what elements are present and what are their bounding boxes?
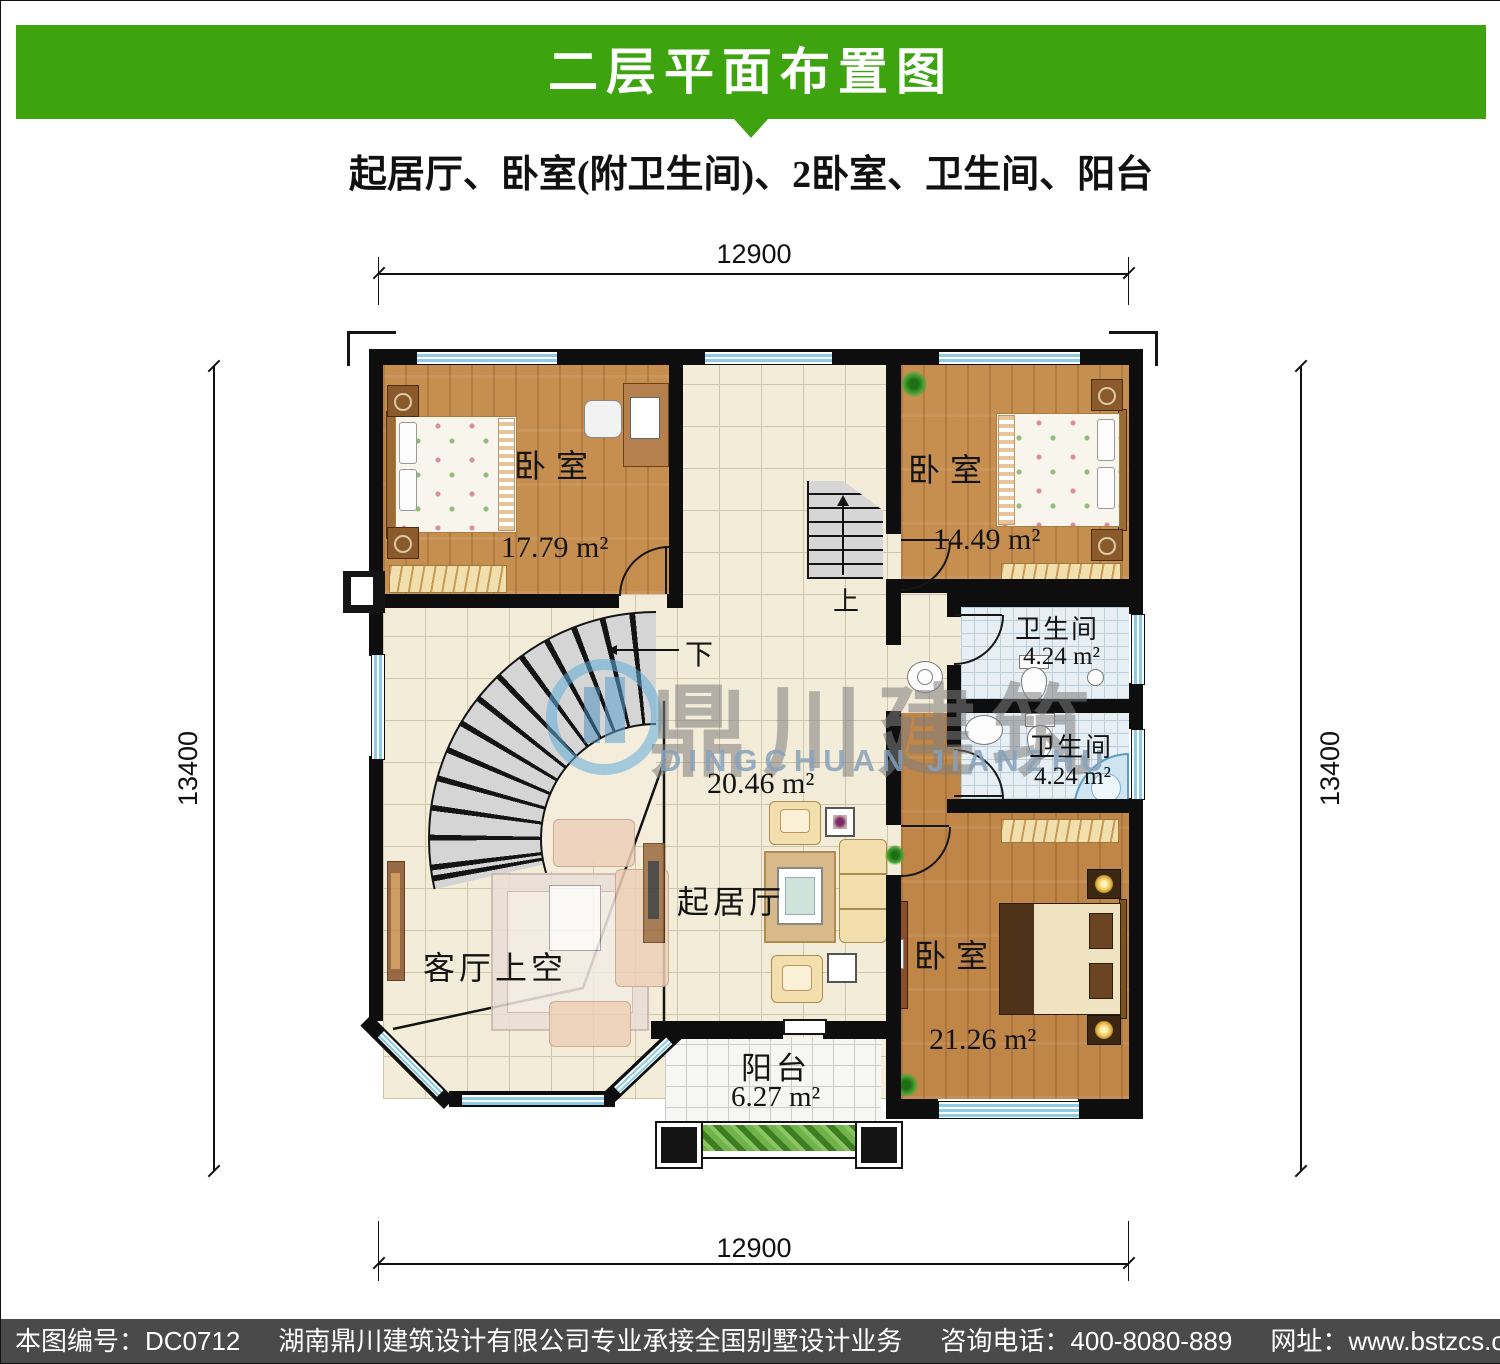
- balcony-column-right: [861, 1127, 897, 1163]
- corner-ornament-topleft: [347, 331, 396, 366]
- bedroom3-label: 卧室: [914, 931, 998, 977]
- bath2-label: 卫生间: [1029, 727, 1113, 764]
- bedroom3-area: 21.26 m²: [929, 1023, 1036, 1057]
- footer-website: 网址：www.bstzcs.com: [1270, 1326, 1500, 1356]
- footer-phone: 咨询电话：400-8080-889: [940, 1326, 1232, 1356]
- balcony-column-left: [661, 1127, 697, 1163]
- chimney-notch: [351, 577, 373, 605]
- bedroom1-label: 卧室: [514, 441, 598, 487]
- bedroom1-area: 17.79 m²: [501, 531, 608, 565]
- hall-label: 起居厅: [677, 877, 785, 923]
- footer-plan-no: 本图编号：DC0712: [15, 1326, 240, 1356]
- stair-up-label: 上: [833, 581, 859, 618]
- footer-bar: 本图编号：DC0712湖南鼎川建筑设计有限公司专业承接全国别墅设计业务咨询电话：…: [1, 1319, 1500, 1363]
- balcony-area: 6.27 m²: [731, 1081, 820, 1114]
- watermark-logo-icon: [546, 659, 662, 775]
- bedroom2-label: 卧室: [908, 445, 992, 491]
- bath1-label: 卫生间: [1015, 609, 1099, 646]
- bath2-area: 4.24 m²: [1034, 763, 1111, 791]
- stair-down-label: 下: [685, 633, 713, 673]
- bath1-area: 4.24 m²: [1023, 643, 1100, 671]
- footer-company: 湖南鼎川建筑设计有限公司专业承接全国别墅设计业务: [278, 1326, 902, 1356]
- bedroom2-area: 14.49 m²: [933, 523, 1040, 557]
- floor-plan-page: 二层平面布置图 起居厅、卧室(附卫生间)、2卧室、卫生间、阳台 12900 12…: [0, 0, 1500, 1364]
- void-label: 客厅上空: [423, 943, 567, 989]
- planter-greenery: [693, 1125, 863, 1151]
- corner-ornament-topright: [1109, 331, 1158, 366]
- hall-area: 20.46 m²: [707, 767, 814, 801]
